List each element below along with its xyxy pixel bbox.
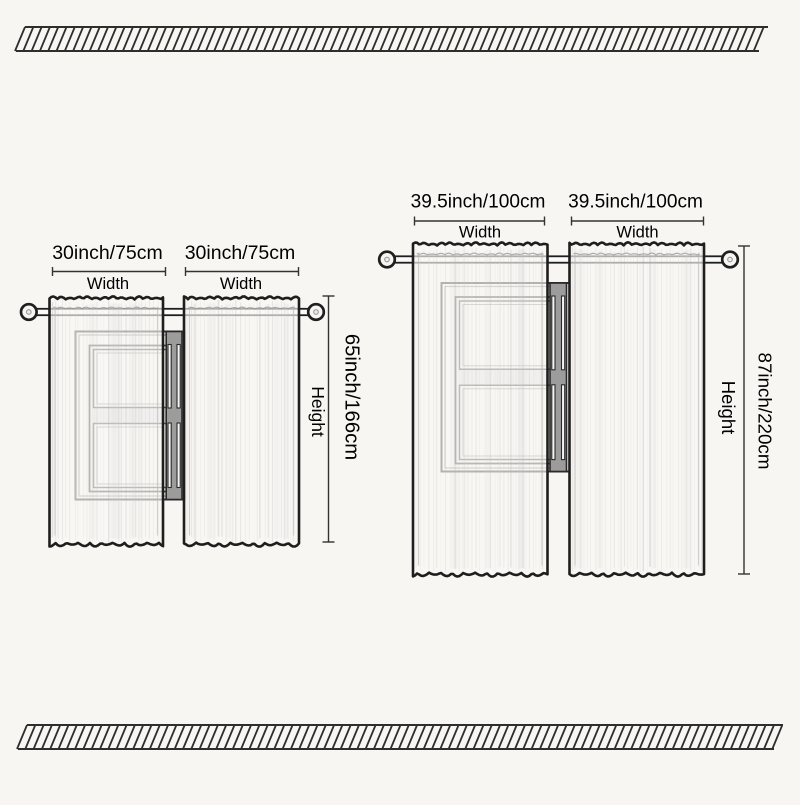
svg-text:Width: Width — [616, 224, 658, 242]
svg-text:Height: Height — [718, 381, 739, 434]
svg-text:Width: Width — [220, 275, 262, 293]
svg-text:30inch/75cm: 30inch/75cm — [185, 242, 296, 264]
svg-text:87inch/220cm: 87inch/220cm — [755, 353, 776, 470]
svg-text:30inch/75cm: 30inch/75cm — [52, 242, 163, 264]
svg-text:Height: Height — [308, 386, 328, 437]
svg-text:39.5inch/100cm: 39.5inch/100cm — [411, 192, 546, 213]
svg-text:Width: Width — [87, 275, 129, 293]
svg-text:65inch/166cm: 65inch/166cm — [341, 334, 363, 460]
svg-text:39.5inch/100cm: 39.5inch/100cm — [568, 192, 703, 213]
svg-text:Width: Width — [459, 224, 501, 242]
